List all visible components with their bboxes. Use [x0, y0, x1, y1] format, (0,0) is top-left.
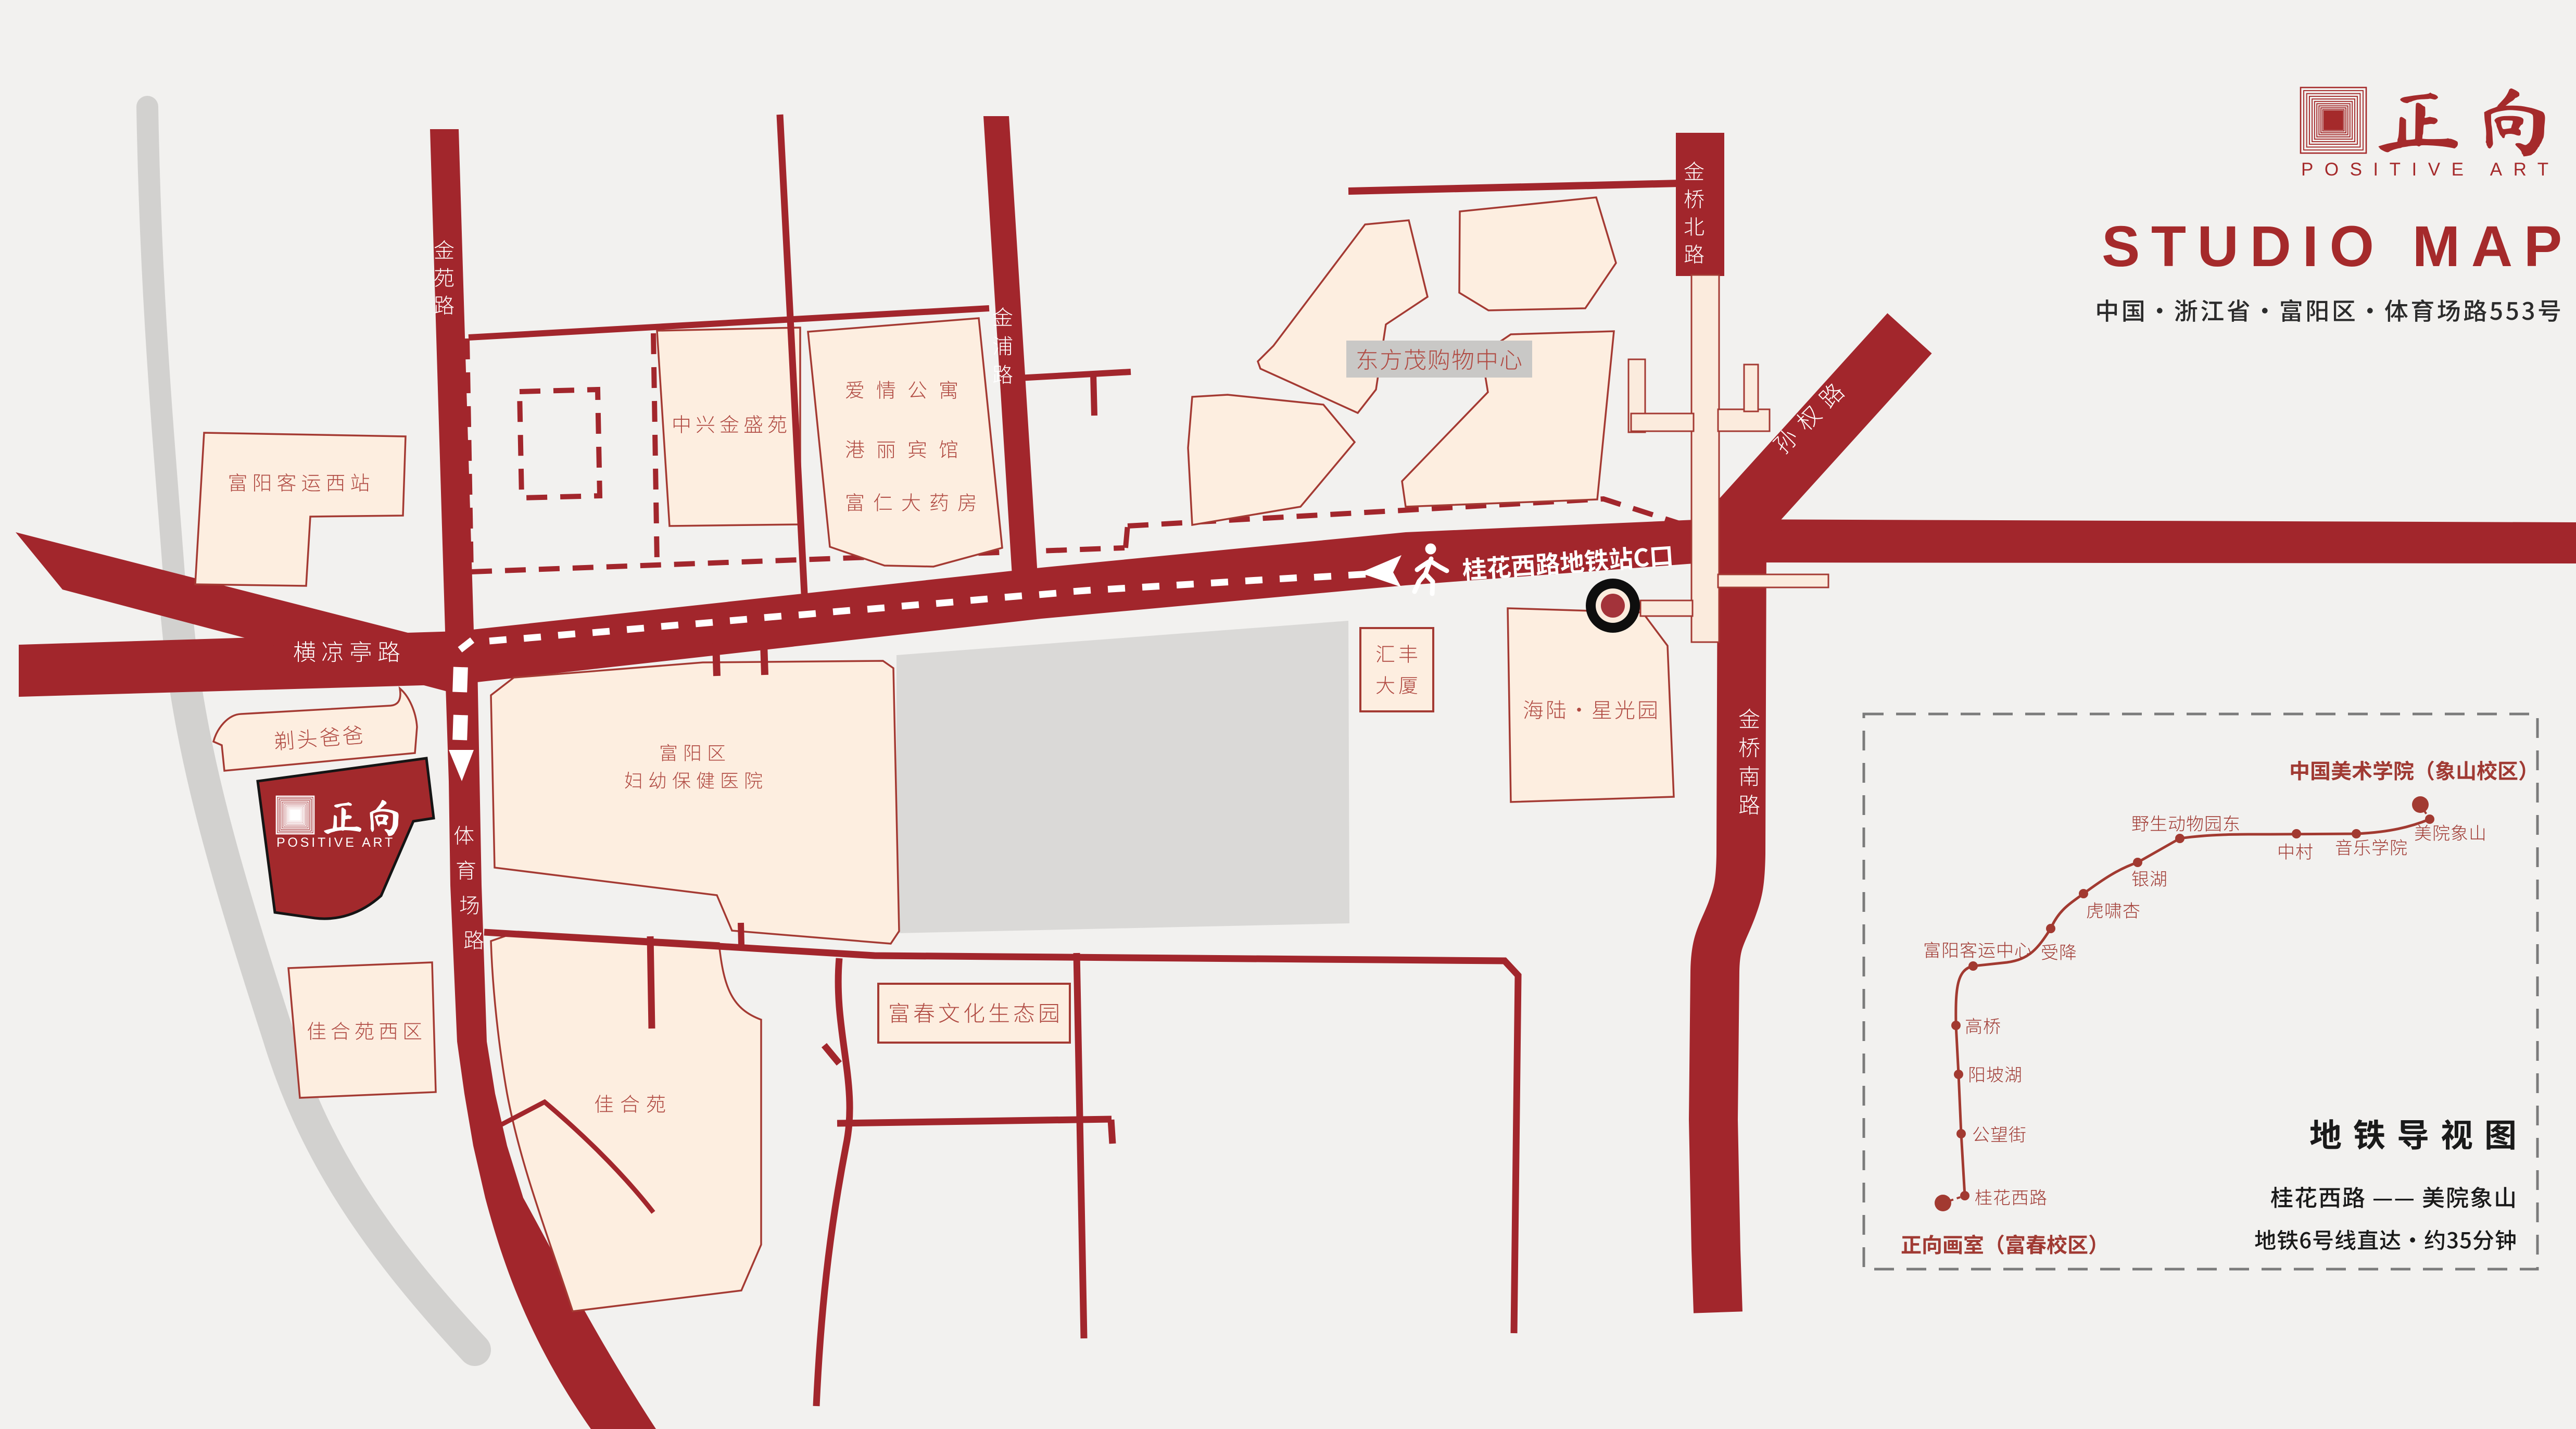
- svg-text:POSITIVE ART: POSITIVE ART: [2301, 159, 2560, 180]
- svg-text:POSITIVE ART: POSITIVE ART: [276, 835, 395, 850]
- svg-text:STUDIO MAP: STUDIO MAP: [2102, 215, 2573, 279]
